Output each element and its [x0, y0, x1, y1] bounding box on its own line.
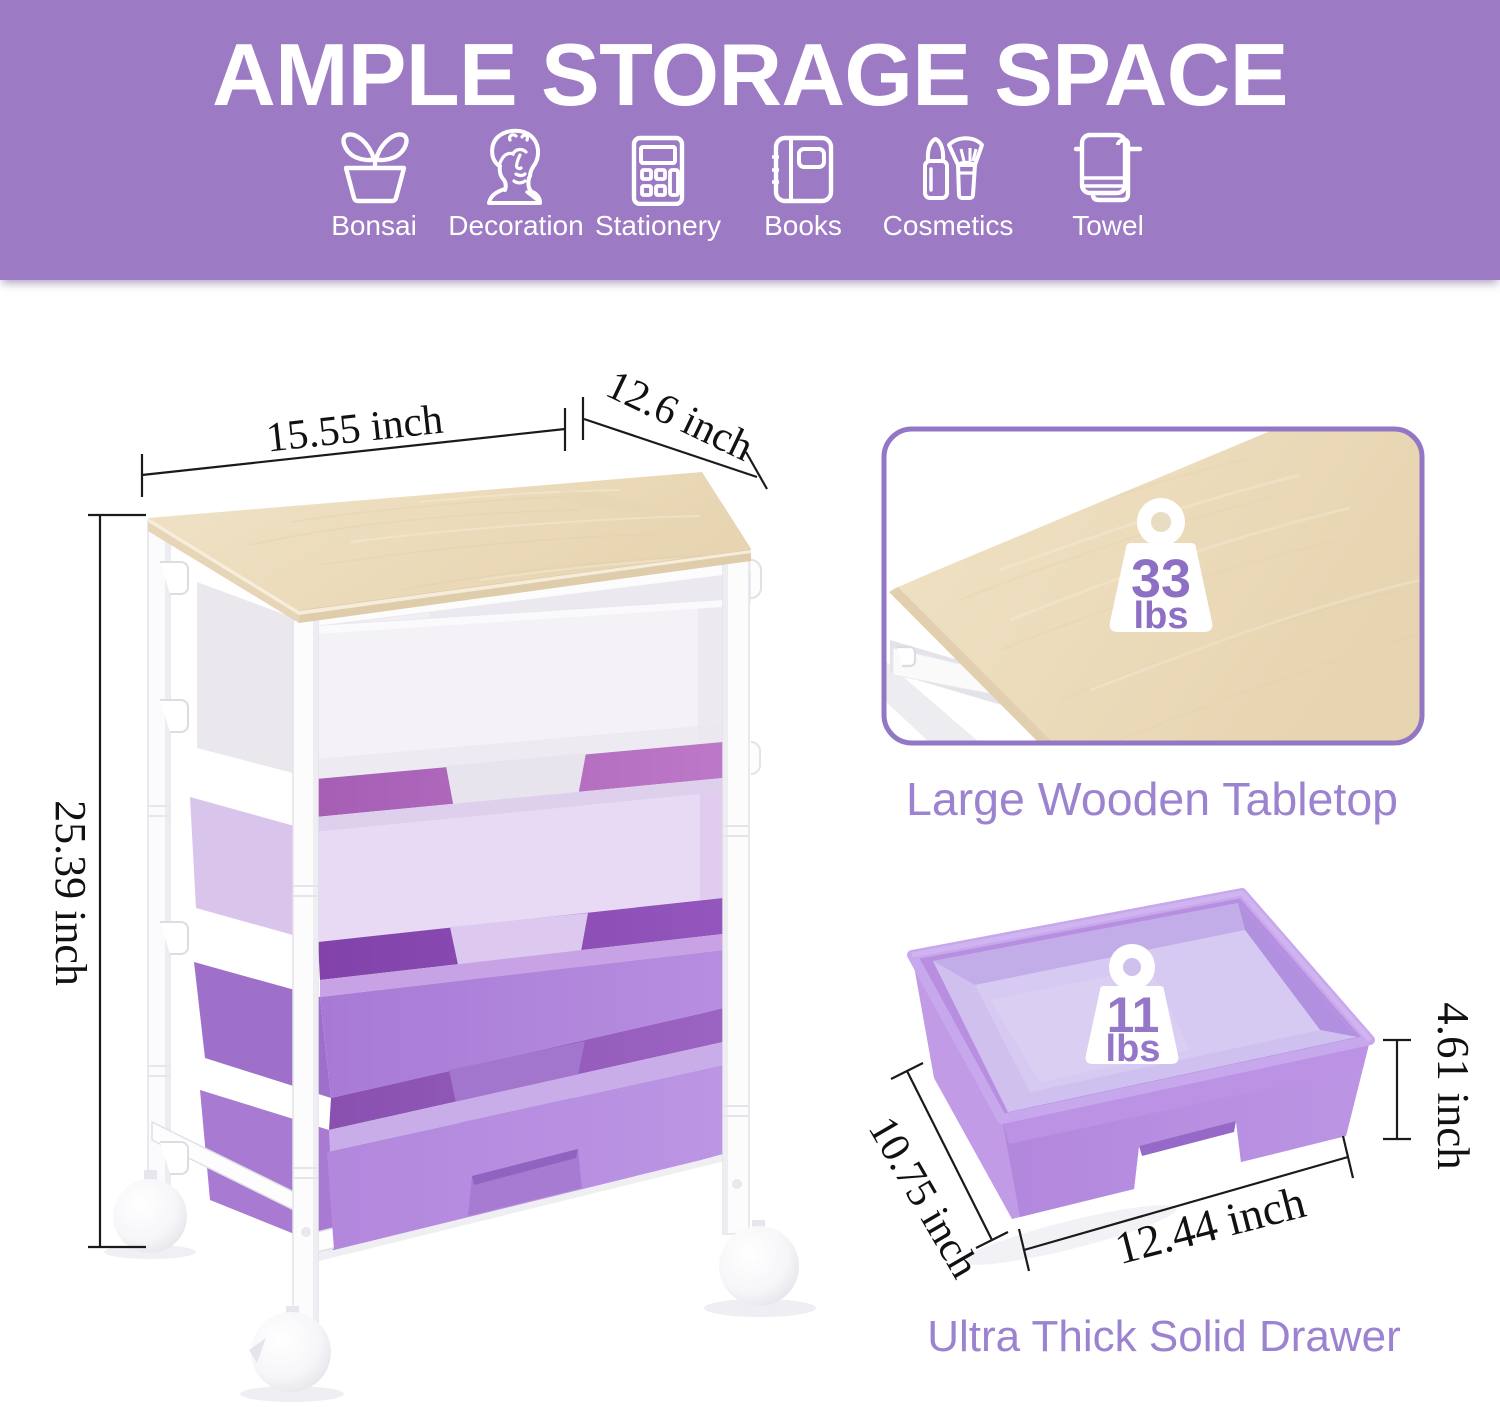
svg-text:Large Wooden Tabletop: Large Wooden Tabletop [906, 773, 1398, 825]
svg-text:Ultra Thick Solid Drawer: Ultra Thick Solid Drawer [927, 1312, 1401, 1361]
svg-text:12.6 inch: 12.6 inch [599, 362, 760, 471]
svg-text:12.44 inch: 12.44 inch [1110, 1176, 1311, 1274]
svg-text:lbs: lbs [1134, 595, 1189, 637]
svg-text:lbs: lbs [1106, 1028, 1161, 1070]
svg-text:4.61 inch: 4.61 inch [1428, 1002, 1478, 1169]
svg-text:25.39 inch: 25.39 inch [46, 800, 95, 986]
svg-text:15.55 inch: 15.55 inch [264, 397, 445, 462]
